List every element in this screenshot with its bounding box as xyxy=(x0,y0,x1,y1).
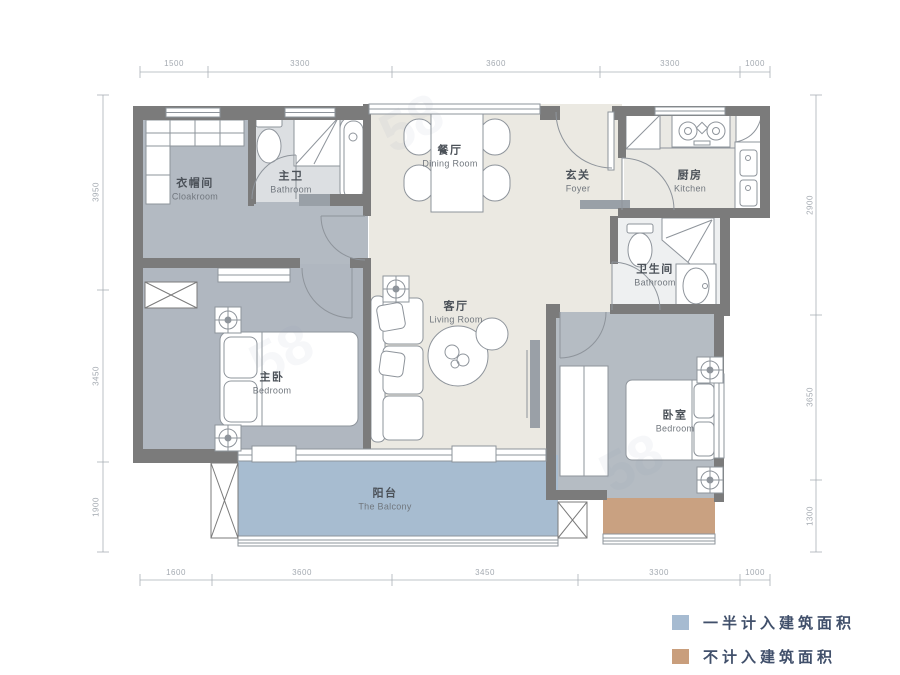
dim-left-1: 3950 xyxy=(92,182,101,202)
legend-item-half-counted: 一半计入建筑面积 xyxy=(672,612,855,633)
floor-plan-page: 58 58 58 衣帽间 Cloakroom 主卫 Bathroom 餐厅 Di… xyxy=(0,0,900,675)
legend-swatch-half-counted xyxy=(672,615,689,630)
area-legend: 一半计入建筑面积 不计入建筑面积 xyxy=(672,612,855,667)
legend-label-half-counted: 一半计入建筑面积 xyxy=(703,612,855,633)
dim-top-4: 3300 xyxy=(660,59,680,68)
dim-right-2: 3650 xyxy=(806,387,815,407)
dim-bottom-3: 3450 xyxy=(475,568,495,577)
dim-left-3: 1900 xyxy=(92,497,101,517)
legend-swatch-not-counted xyxy=(672,649,689,664)
legend-item-not-counted: 不计入建筑面积 xyxy=(672,646,855,667)
dim-top-2: 3300 xyxy=(290,59,310,68)
dim-bottom-5: 1000 xyxy=(745,568,765,577)
dim-top-1: 1500 xyxy=(164,59,184,68)
dim-top-3: 3600 xyxy=(486,59,506,68)
dim-right-1: 2900 xyxy=(806,195,815,215)
legend-label-not-counted: 不计入建筑面积 xyxy=(703,646,836,667)
dim-bottom-1: 1600 xyxy=(166,568,186,577)
dim-bottom-4: 3300 xyxy=(649,568,669,577)
dim-right-3: 1300 xyxy=(806,506,815,526)
dim-left-2: 3450 xyxy=(92,366,101,386)
dim-bottom-2: 3600 xyxy=(292,568,312,577)
dim-top-5: 1000 xyxy=(745,59,765,68)
